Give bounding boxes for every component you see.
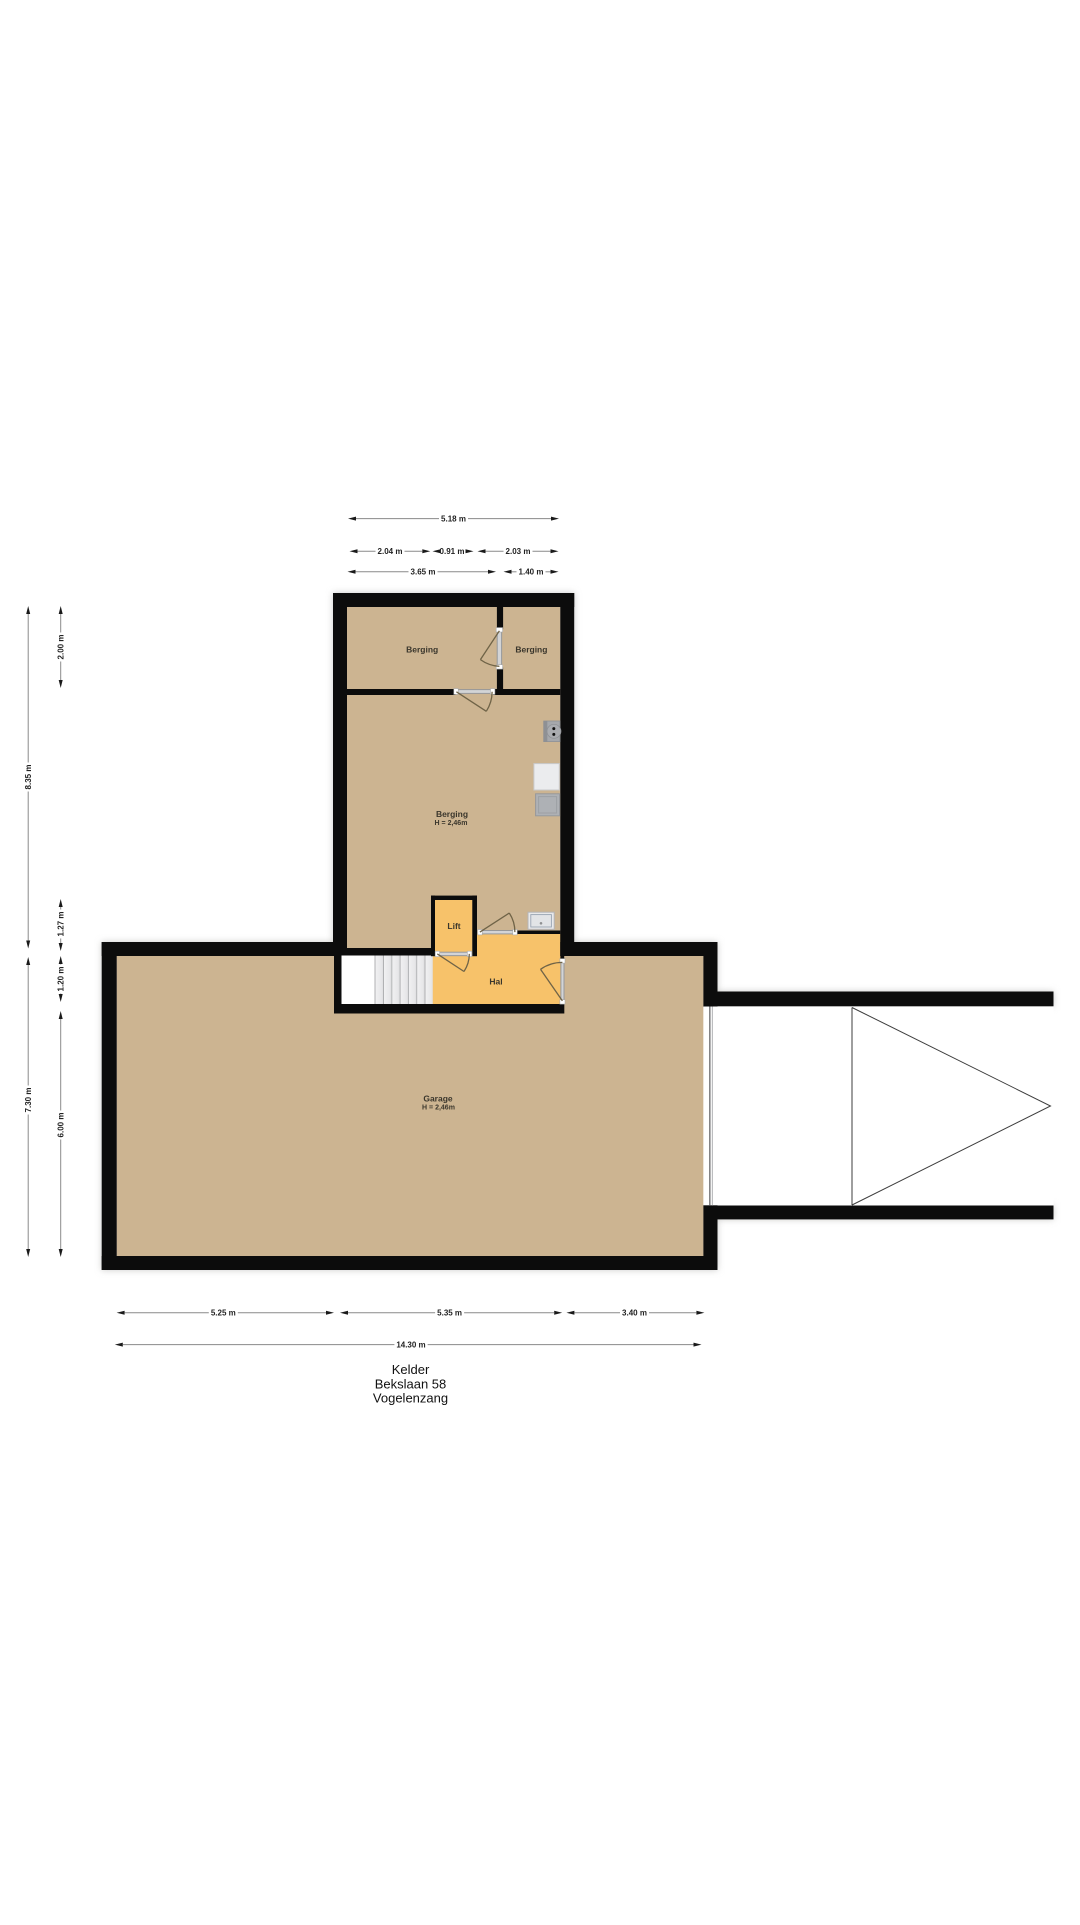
- svg-text:14.30 m: 14.30 m: [396, 1341, 425, 1350]
- svg-text:8.35 m: 8.35 m: [24, 765, 33, 790]
- svg-text:Berging: Berging: [406, 645, 438, 655]
- svg-text:2.03 m: 2.03 m: [506, 547, 531, 556]
- svg-text:1.27 m: 1.27 m: [57, 912, 66, 937]
- svg-text:3.40 m: 3.40 m: [622, 1309, 647, 1318]
- svg-text:0.91 m: 0.91 m: [440, 547, 465, 556]
- svg-text:Hal: Hal: [489, 977, 502, 987]
- svg-text:H = 2,46m: H = 2,46m: [435, 820, 468, 827]
- svg-text:1.20 m: 1.20 m: [57, 967, 66, 992]
- svg-text:6.00 m: 6.00 m: [57, 1113, 66, 1138]
- svg-text:5.25 m: 5.25 m: [211, 1309, 236, 1318]
- svg-text:Berging: Berging: [515, 644, 547, 654]
- svg-text:2.00 m: 2.00 m: [57, 635, 66, 660]
- svg-text:3.65 m: 3.65 m: [411, 568, 436, 577]
- svg-text:1.40 m: 1.40 m: [519, 568, 544, 577]
- svg-text:Kelder: Kelder: [392, 1362, 430, 1377]
- svg-text:7.30 m: 7.30 m: [24, 1088, 33, 1113]
- svg-text:5.35 m: 5.35 m: [437, 1309, 462, 1318]
- svg-text:5.18 m: 5.18 m: [441, 515, 466, 524]
- svg-text:Berging: Berging: [436, 809, 468, 819]
- svg-text:H = 2,46m: H = 2,46m: [422, 1105, 455, 1112]
- svg-text:Lift: Lift: [447, 921, 460, 931]
- svg-text:Garage: Garage: [423, 1093, 453, 1103]
- svg-text:2.04 m: 2.04 m: [378, 547, 403, 556]
- svg-text:Vogelenzang: Vogelenzang: [373, 1391, 448, 1406]
- svg-text:Bekslaan 58: Bekslaan 58: [375, 1377, 447, 1392]
